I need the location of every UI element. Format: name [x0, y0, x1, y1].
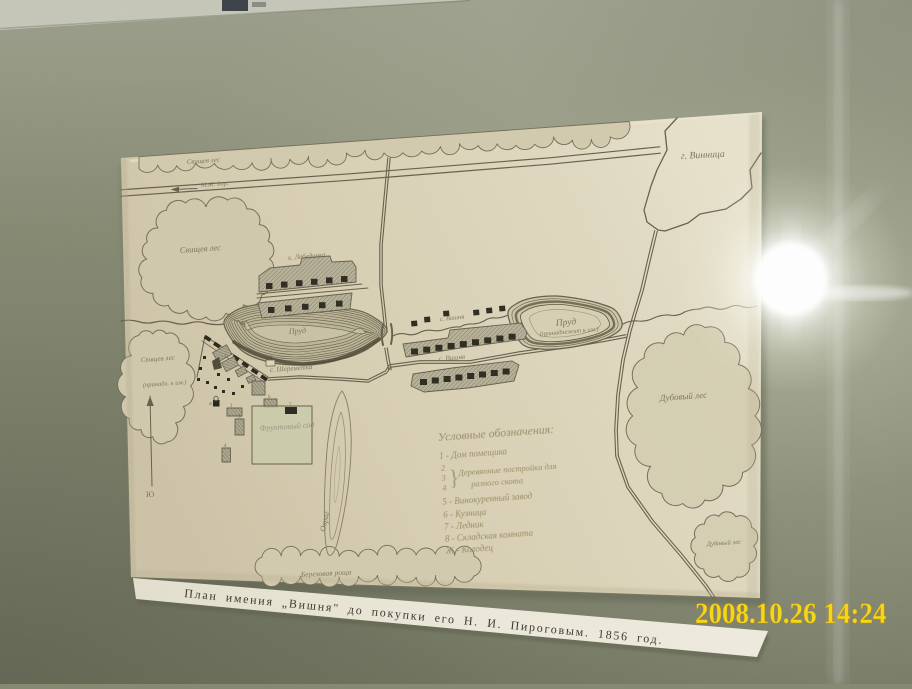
svg-text:2008.10.26 14:24: 2008.10.26 14:24	[695, 598, 886, 630]
